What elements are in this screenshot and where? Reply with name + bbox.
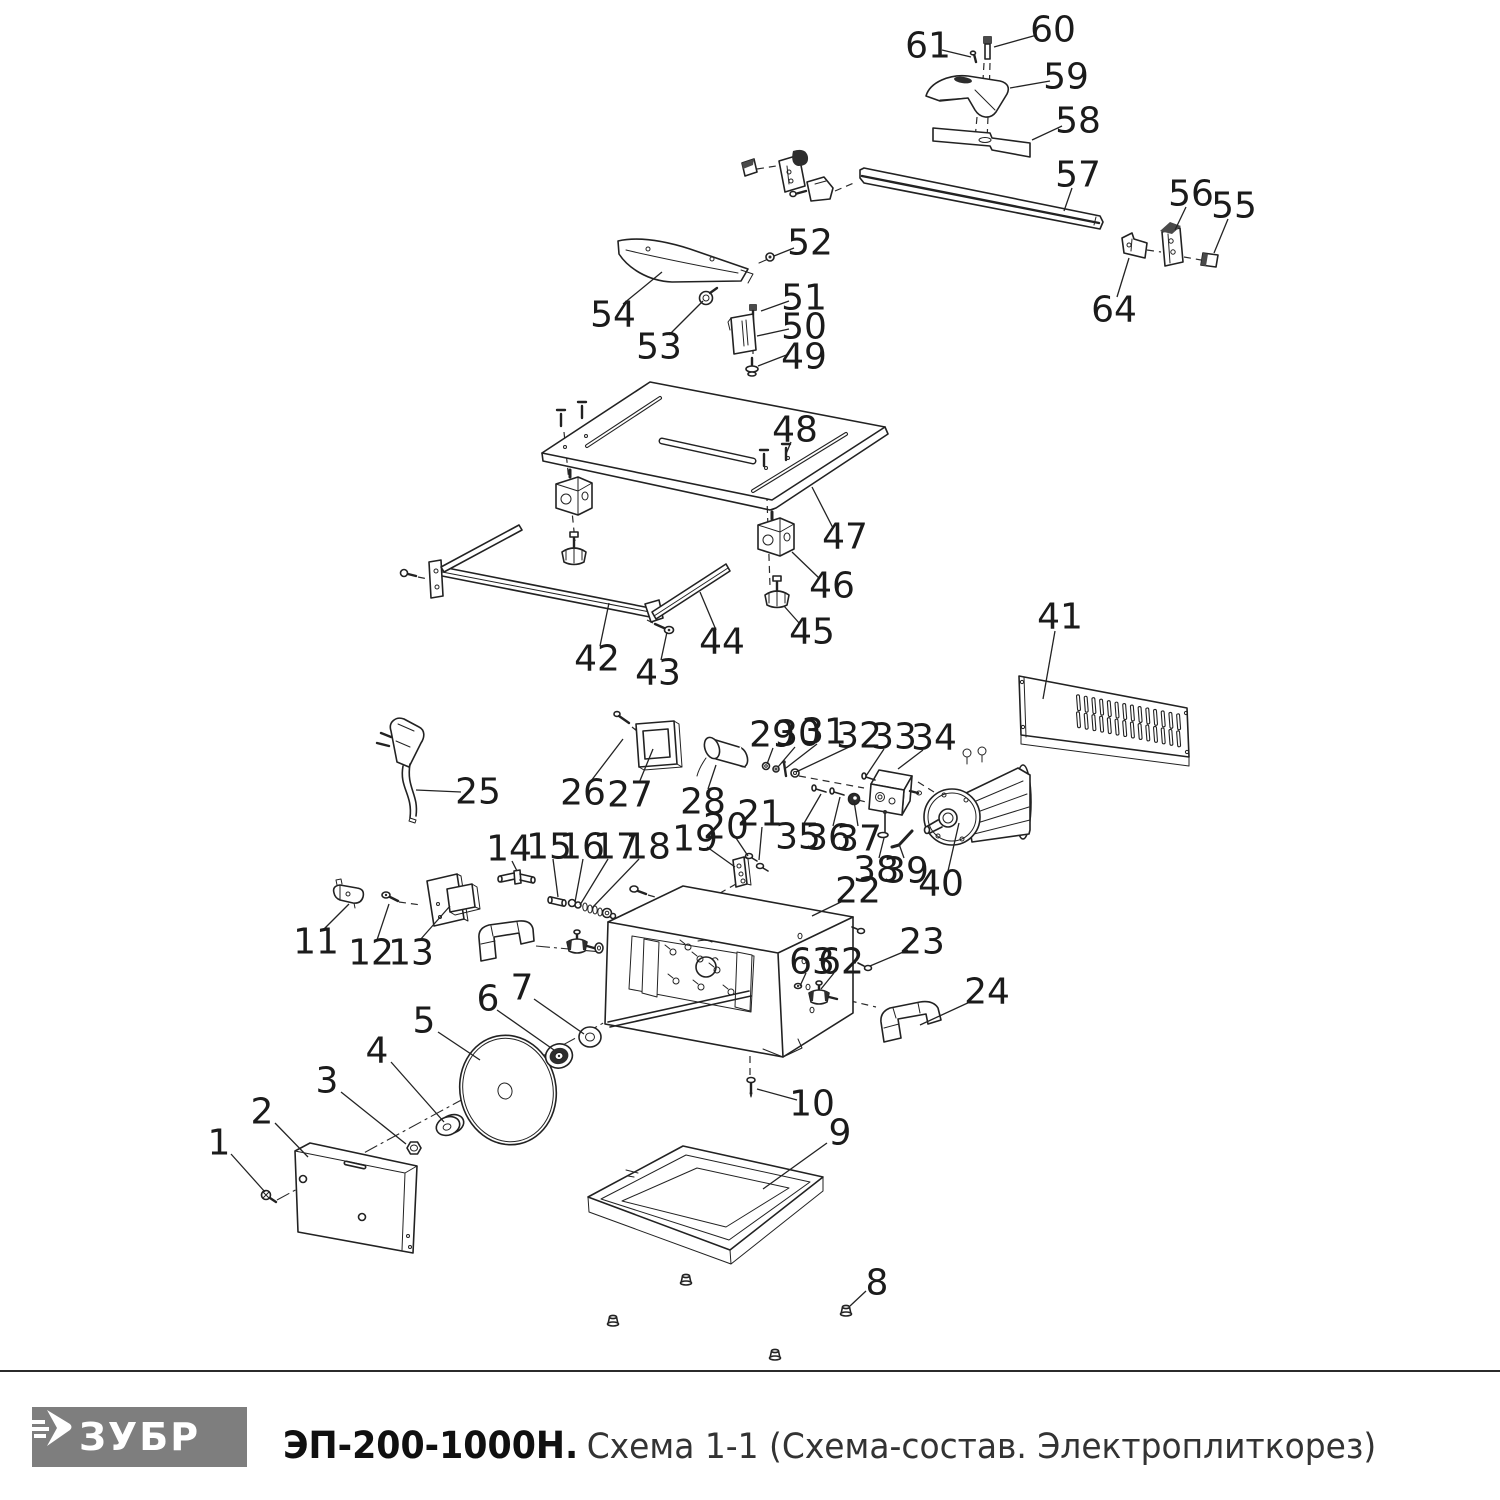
- part-24-handle: [881, 1002, 941, 1042]
- leader-line-4: [391, 1062, 444, 1122]
- leader-line-1: [231, 1154, 265, 1192]
- part-label-18: 18: [625, 827, 671, 868]
- part-28-capacitor: [697, 735, 750, 776]
- zubr-arrow-icon: [32, 1407, 78, 1449]
- part-label-40: 40: [918, 864, 964, 905]
- part-label-6: 6: [477, 979, 500, 1020]
- part-25-power-plug: [377, 718, 424, 823]
- model-number: ЭП-200-1000Н.: [283, 1424, 578, 1467]
- part-9-water-tray: [588, 1146, 823, 1264]
- grille-slot-inner: [1109, 719, 1110, 732]
- part-label-7: 7: [511, 968, 534, 1009]
- grille-slot-inner: [1178, 715, 1179, 728]
- leader-line-3: [341, 1092, 406, 1144]
- part-7-washer: [579, 1027, 601, 1047]
- part-label-8: 8: [866, 1263, 889, 1304]
- grille-slot-inner: [1140, 708, 1141, 721]
- part-label-27: 27: [607, 775, 653, 816]
- grille-slot-inner: [1132, 707, 1133, 720]
- part-10-screw: [747, 1078, 755, 1098]
- part-label-57: 57: [1055, 155, 1101, 196]
- part-label-41: 41: [1037, 597, 1083, 638]
- part-label-4: 4: [366, 1031, 389, 1072]
- part-55-clamp-piece: [1201, 253, 1218, 267]
- part-label-60: 60: [1030, 10, 1076, 51]
- leader-line-5: [438, 1032, 480, 1060]
- part-49-bolt: [746, 358, 758, 376]
- part-39-hex-key: [892, 831, 912, 847]
- grille-slot-inner: [1170, 731, 1171, 744]
- part-label-51: 51: [781, 278, 827, 319]
- part-59-guide-holder: [926, 76, 1008, 118]
- part-label-56: 56: [1168, 174, 1214, 215]
- part-label-59: 59: [1043, 57, 1089, 98]
- part-label-2: 2: [251, 1092, 274, 1133]
- part-label-3: 3: [316, 1061, 339, 1102]
- grille-slot-inner: [1093, 716, 1094, 729]
- part-label-45: 45: [789, 612, 835, 653]
- exploded-parts-diagram: 1234567891011121314151617181920212223242…: [0, 0, 1500, 1370]
- grille-slot-inner: [1086, 715, 1087, 728]
- grille-slot-inner: [1086, 698, 1087, 711]
- part-label-54: 54: [590, 295, 636, 336]
- part-13-switch-housing: [427, 874, 480, 926]
- part-label-52: 52: [787, 223, 833, 264]
- part-1-screw: [262, 1191, 277, 1203]
- part-5-cutting-disc: [450, 1026, 567, 1154]
- part-label-1: 1: [208, 1123, 231, 1164]
- grille-slot-inner: [1147, 709, 1148, 722]
- part-label-55: 55: [1211, 186, 1257, 227]
- zubr-logo: ЗУБР: [32, 1407, 247, 1467]
- part-label-34: 34: [911, 718, 957, 759]
- left-handle: [479, 921, 534, 961]
- grille-slot-inner: [1178, 732, 1179, 745]
- part-label-58: 58: [1055, 101, 1101, 142]
- grille-slot-inner: [1093, 699, 1094, 712]
- part-label-13: 13: [388, 933, 434, 974]
- schema-title: ЭП-200-1000Н.Схема 1-1 (Схема-состав. Эл…: [283, 1424, 1376, 1467]
- brand-name: ЗУБР: [79, 1418, 200, 1456]
- part-label-26: 26: [560, 773, 606, 814]
- grille-slot-inner: [1117, 704, 1118, 717]
- leader-line-2: [275, 1123, 308, 1157]
- grille-slot-inner: [1117, 721, 1118, 734]
- part-label-46: 46: [809, 566, 855, 607]
- part-label-23: 23: [899, 922, 945, 963]
- part-15-pin: [548, 897, 566, 906]
- part-34-terminal-box: [869, 770, 922, 815]
- part-label-12: 12: [348, 933, 394, 974]
- part-40-motor: [924, 747, 1031, 845]
- part-3-nut: [407, 1142, 421, 1154]
- part-label-10: 10: [789, 1084, 835, 1125]
- leader-line-7: [534, 999, 584, 1034]
- part-2-blade-cover: [295, 1143, 417, 1253]
- part-60-bolt: [983, 36, 992, 59]
- grille-slot-inner: [1078, 696, 1079, 709]
- part-44-fence-guide: [652, 564, 730, 619]
- grille-slot-inner: [1101, 701, 1102, 714]
- part-label-24: 24: [964, 972, 1010, 1013]
- part-label-48: 48: [772, 410, 818, 451]
- grille-slot-inner: [1101, 718, 1102, 731]
- part-label-14: 14: [486, 829, 532, 870]
- part-label-53: 53: [636, 327, 682, 368]
- grille-slot-inner: [1132, 724, 1133, 737]
- part-label-25: 25: [455, 772, 501, 813]
- housing-top-screw: [630, 886, 646, 894]
- part-number-labels: 1234567891011121314151617181920212223242…: [208, 10, 1257, 1307]
- part-label-63: 63: [789, 942, 835, 983]
- grille-slot-inner: [1109, 702, 1110, 715]
- part-54-blade-guard: [618, 239, 753, 283]
- grille-slot-inner: [1163, 729, 1164, 742]
- grille-slot-inner: [1124, 705, 1125, 718]
- grille-slot-inner: [1155, 728, 1156, 741]
- part-64-angle-bracket: [1122, 233, 1147, 258]
- leader-line-8: [850, 1291, 866, 1306]
- left-lock-knob: [567, 930, 603, 953]
- part-label-64: 64: [1091, 290, 1137, 331]
- grille-slot-inner: [1147, 726, 1148, 739]
- part-14-pin: [498, 870, 535, 884]
- part-47-table-top: [542, 382, 888, 510]
- part-58-guide-plate: [933, 128, 1030, 157]
- grille-slot-inner: [1155, 711, 1156, 724]
- part-19-bracket: [733, 857, 751, 887]
- part-label-28: 28: [680, 782, 726, 823]
- schema-subtitle: Схема 1-1 (Схема-состав. Электроплиткоре…: [587, 1427, 1376, 1467]
- part-label-43: 43: [635, 653, 681, 694]
- part-label-61: 61: [905, 26, 951, 67]
- part-label-5: 5: [413, 1001, 436, 1042]
- grille-slot-inner: [1140, 725, 1141, 738]
- part-50-guide-bracket: [728, 314, 756, 354]
- part-35-37-screws-grommet: [812, 785, 860, 805]
- grille-slot-inner: [1078, 713, 1079, 726]
- part-42-fence-rail: [401, 525, 664, 622]
- part-label-11: 11: [293, 922, 339, 963]
- part-33-screw: [862, 773, 875, 780]
- grille-slot-inner: [1170, 714, 1171, 727]
- part-label-47: 47: [822, 517, 868, 558]
- part-52-screw: [759, 253, 774, 263]
- part-16-18-washers-spring: [569, 900, 616, 919]
- footer-divider: [0, 1370, 1500, 1372]
- part-61-screw: [971, 51, 977, 62]
- grille-slot-inner: [1124, 722, 1125, 735]
- part-43-screw: [655, 624, 674, 634]
- fence-clamp-assembly: [742, 150, 833, 201]
- part-12-screw: [382, 892, 398, 901]
- part-label-33: 33: [871, 717, 917, 758]
- part-label-44: 44: [699, 622, 745, 663]
- part-56-clamp-bracket: [1160, 222, 1183, 266]
- part-8-rubber-feet: [608, 1274, 852, 1360]
- part-27-switch-frame: [636, 721, 682, 770]
- part-label-42: 42: [574, 639, 620, 680]
- grille-slot-inner: [1163, 712, 1164, 725]
